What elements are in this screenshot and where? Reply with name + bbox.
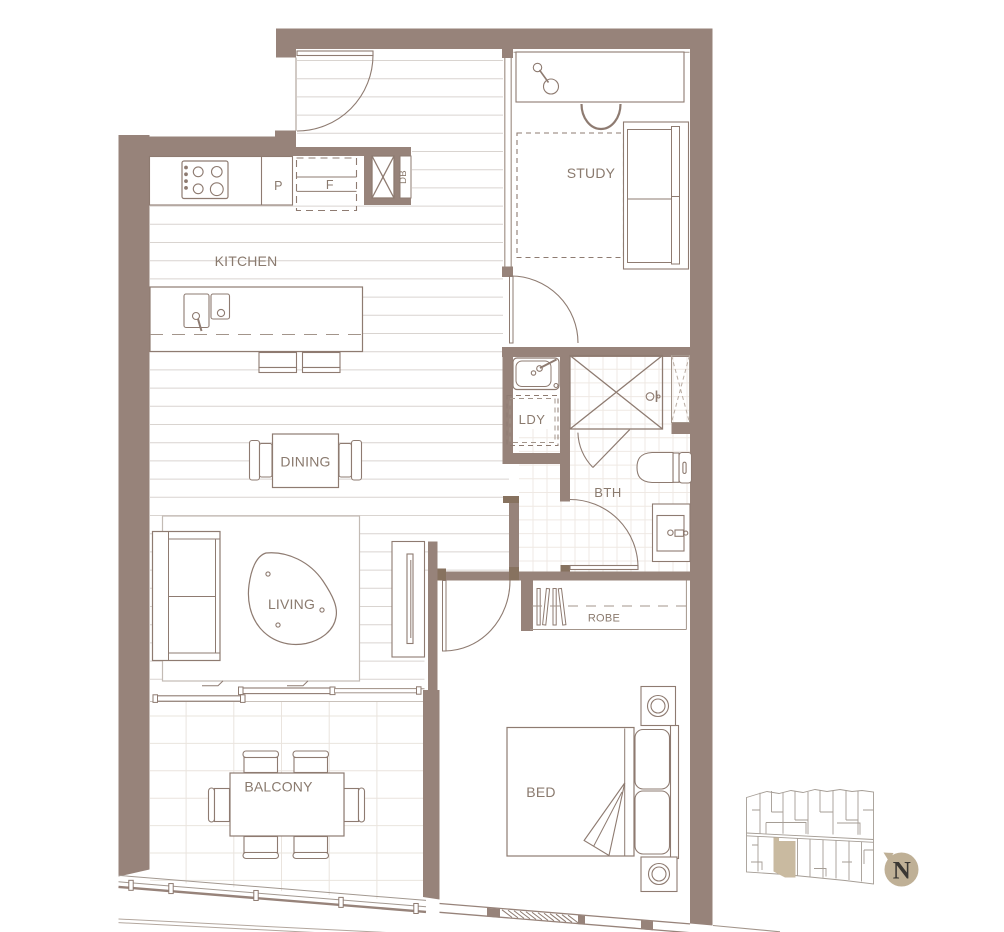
svg-text:DINING: DINING [280, 454, 330, 470]
svg-text:P: P [274, 179, 283, 193]
svg-text:LDY: LDY [519, 412, 546, 427]
svg-text:BED: BED [526, 784, 555, 800]
svg-text:BALCONY: BALCONY [244, 779, 313, 795]
svg-text:ROBE: ROBE [588, 613, 620, 625]
svg-text:LIVING: LIVING [268, 596, 315, 612]
svg-text:KITCHEN: KITCHEN [215, 253, 278, 269]
svg-text:BTH: BTH [594, 485, 622, 500]
svg-text:N: N [893, 857, 911, 884]
svg-text:F: F [326, 178, 334, 192]
svg-text:DB: DB [398, 170, 409, 184]
svg-text:STUDY: STUDY [567, 165, 616, 181]
